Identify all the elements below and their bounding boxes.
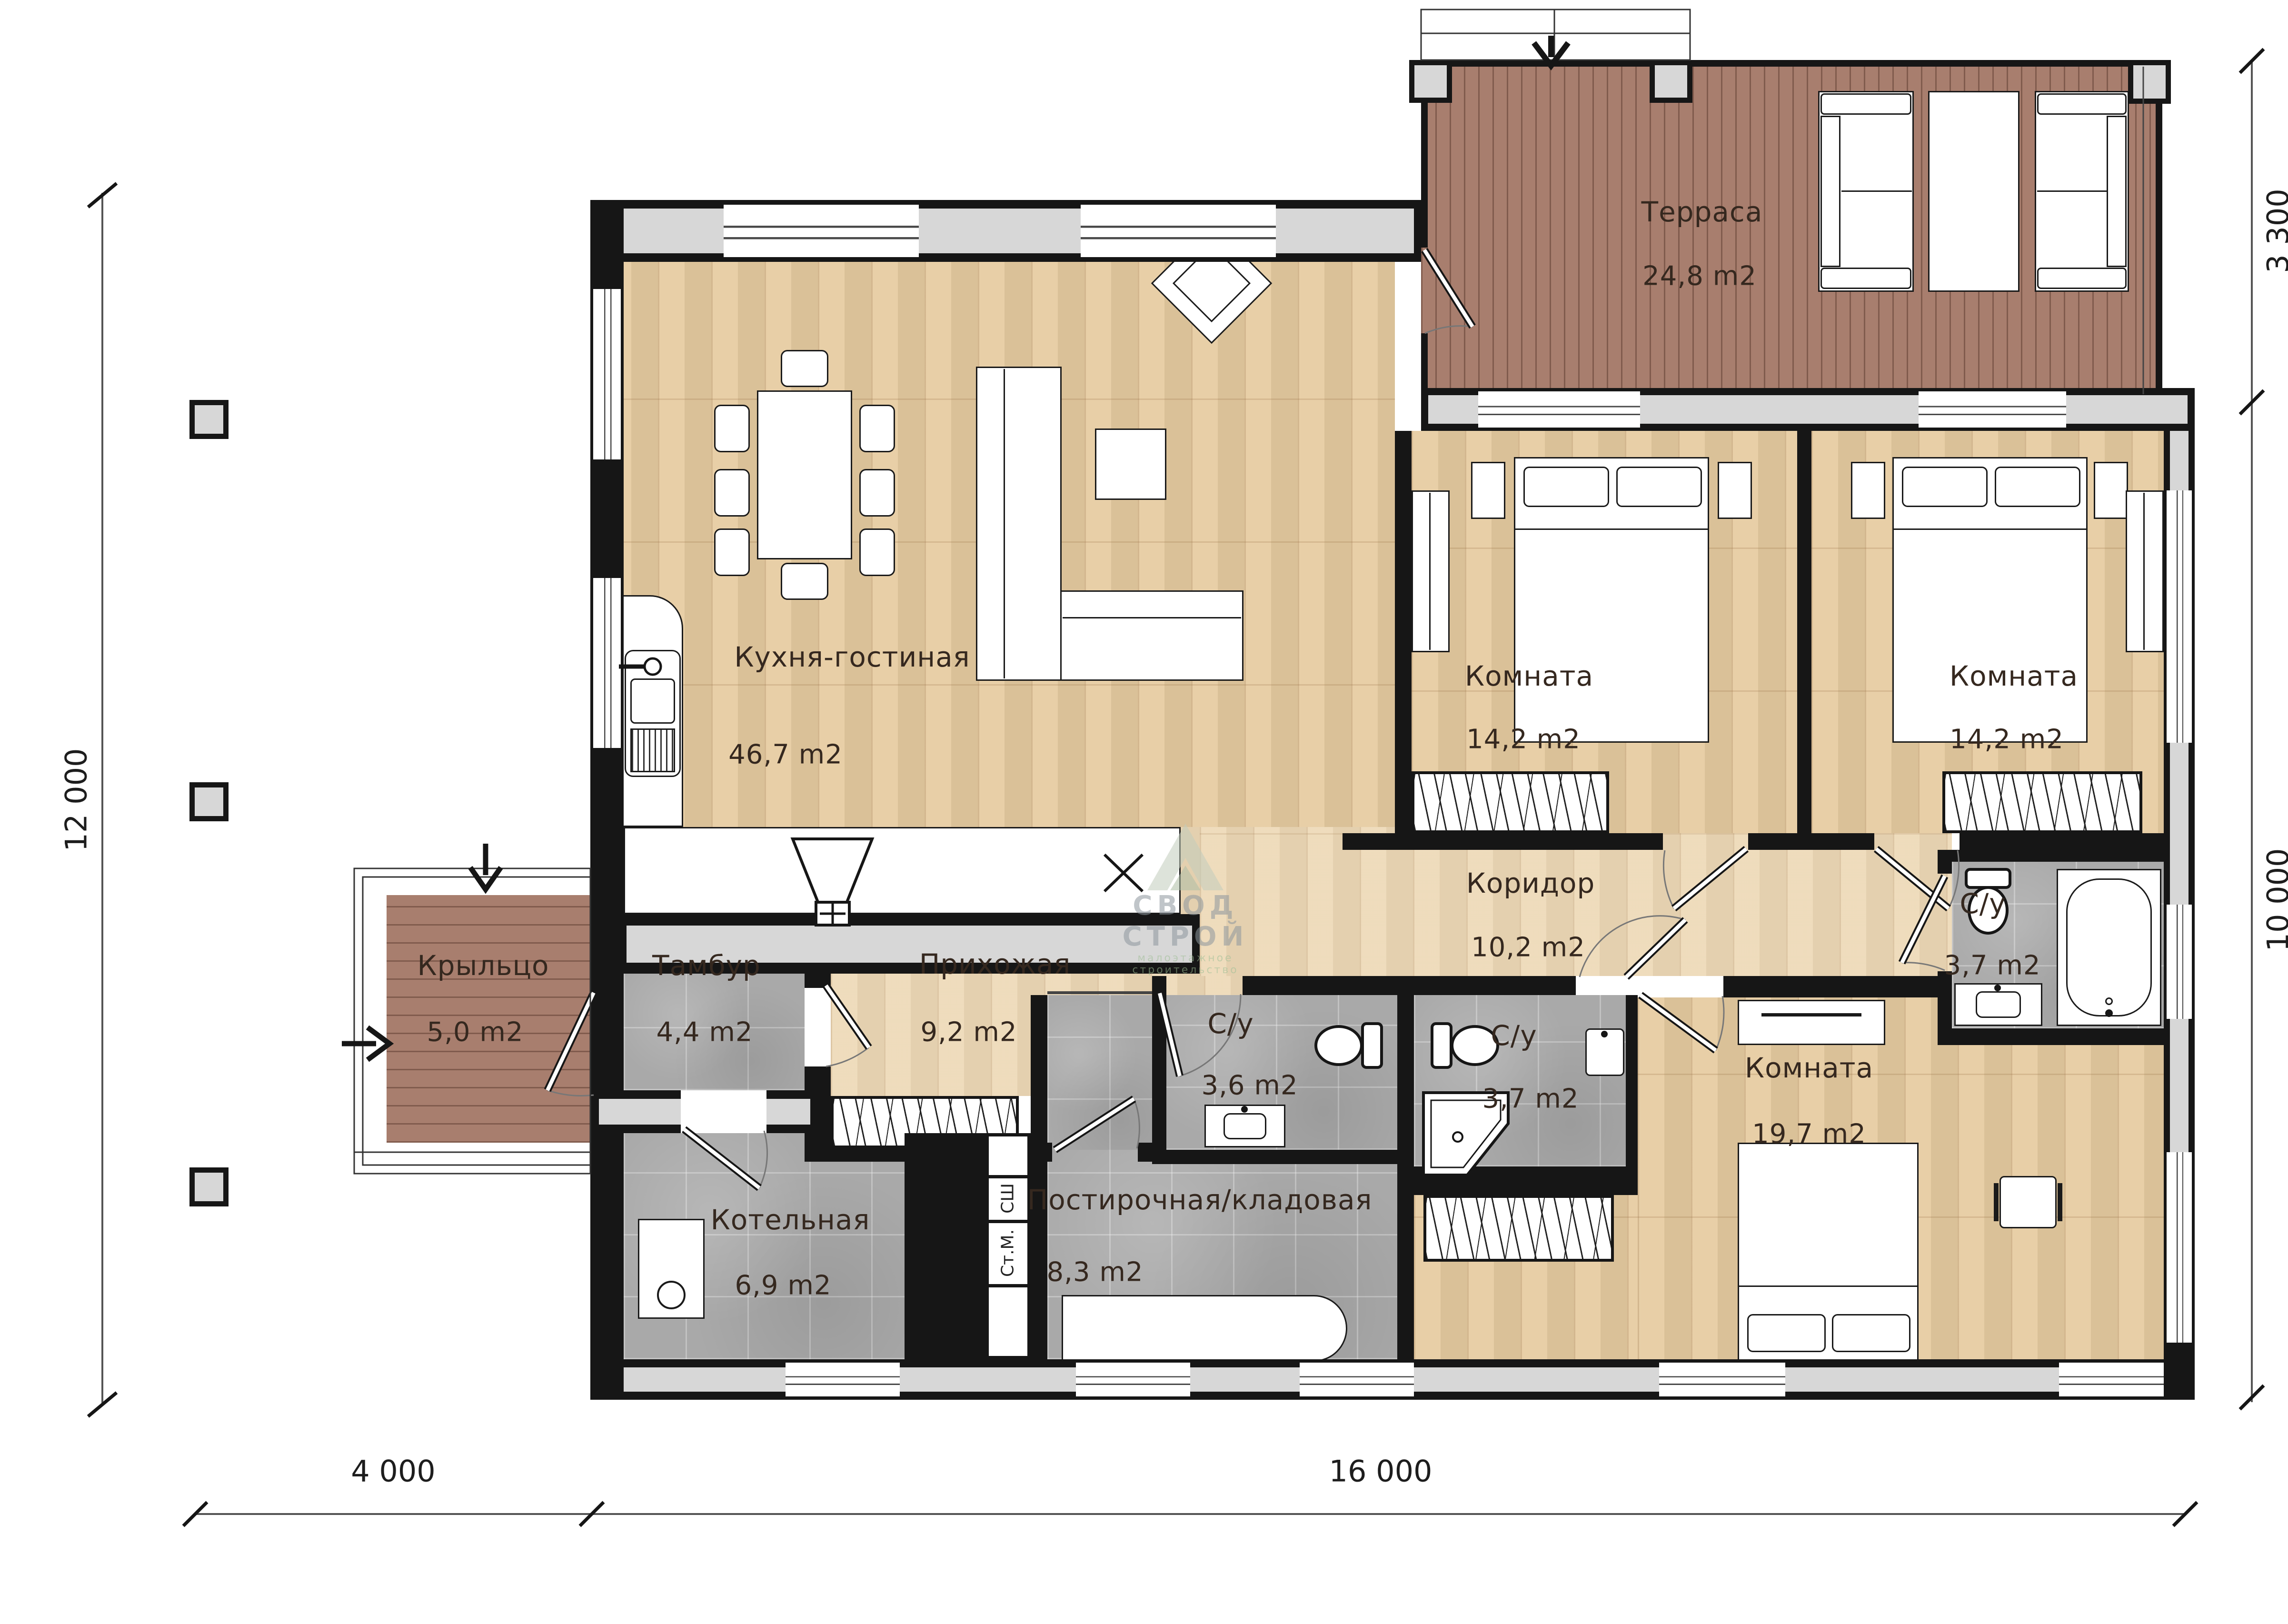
room-area-bedroom3: 19,7 m2 (1752, 1119, 1866, 1150)
room-area-bedroom1: 14,2 m2 (1466, 724, 1581, 755)
room-area-wc3: 3,7 m2 (1944, 950, 2040, 981)
cooker-hood-icon (793, 839, 872, 906)
room-label-laundry: Постирочная/кладовая (1027, 1184, 1373, 1216)
room-area-bedroom2: 14,2 m2 (1950, 724, 2064, 755)
dimension-lines (102, 61, 2252, 1514)
floor-plan: СШ Ст.М. (0, 0, 2288, 1624)
room-label-kitchen: Кухня-гостиная (734, 641, 970, 673)
door-leaves (547, 250, 1959, 1188)
room-area-laundry: 8,3 m2 (1046, 1257, 1143, 1288)
marker-square (189, 1167, 229, 1206)
dim-left: 12 000 (59, 748, 94, 852)
watermark: СВОД СТРОЙ малоэтажное строительство (1085, 824, 1285, 976)
room-area-tambour: 4,4 m2 (656, 1017, 753, 1048)
room-label-bedroom1: Комната (1465, 660, 1593, 692)
room-area-terrace: 24,8 m2 (1642, 261, 1757, 292)
entry-arrow-terrace (1534, 36, 1568, 66)
room-label-wc2: С/у (1491, 1019, 1537, 1052)
dim-right-top: 3 300 (2261, 189, 2288, 273)
room-label-wc3: С/у (1960, 887, 2006, 920)
basin-faucet (1601, 1031, 1608, 1037)
room-label-tambour: Тамбур (652, 949, 761, 982)
watermark-subtitle: малоэтажное строительство (1085, 952, 1285, 976)
watermark-title: СВОД СТРОЙ (1085, 890, 1285, 952)
bathtub-faucet (2105, 1009, 2113, 1017)
room-label-hallway: Прихожая (919, 948, 1071, 980)
room-area-hallway: 9,2 m2 (920, 1017, 1017, 1048)
dim-right-bottom: 10 000 (2261, 848, 2288, 952)
plan-vector-overlay (0, 0, 2288, 1624)
basin-faucet (1994, 985, 2001, 991)
watermark-house-icon (1147, 824, 1224, 890)
room-label-terrace: Терраса (1641, 196, 1763, 228)
terrace-steps (1421, 10, 1690, 60)
entry-arrow-porch-left (342, 1027, 389, 1060)
basin-faucet (1241, 1106, 1248, 1113)
entry-arrow-porch-top (470, 844, 501, 889)
toilet-icon (1432, 1024, 1498, 1067)
room-label-bedroom3: Комната (1745, 1052, 1873, 1084)
marker-square (189, 400, 229, 439)
room-area-kitchen: 46,7 m2 (728, 739, 843, 770)
toilet-icon (1316, 1024, 1382, 1067)
dim-bottom-right: 16 000 (1329, 1454, 1432, 1489)
faucet-icon (645, 658, 661, 675)
dimension-ticks (88, 49, 2264, 1526)
room-label-wc1: С/у (1207, 1007, 1253, 1040)
room-area-boiler: 6,9 m2 (735, 1270, 831, 1301)
room-area-corridor: 10,2 m2 (1471, 932, 1585, 963)
dim-bottom-left: 4 000 (351, 1454, 436, 1489)
room-area-wc1: 3,6 m2 (1201, 1070, 1298, 1101)
marker-square (189, 782, 229, 821)
room-label-bedroom2: Комната (1950, 660, 2078, 692)
room-area-porch: 5,0 m2 (427, 1017, 523, 1048)
room-label-boiler: Котельная (711, 1204, 870, 1236)
room-label-corridor: Коридор (1466, 867, 1595, 899)
room-label-porch: Крыльцо (417, 949, 549, 982)
room-area-wc2: 3,7 m2 (1482, 1084, 1579, 1115)
